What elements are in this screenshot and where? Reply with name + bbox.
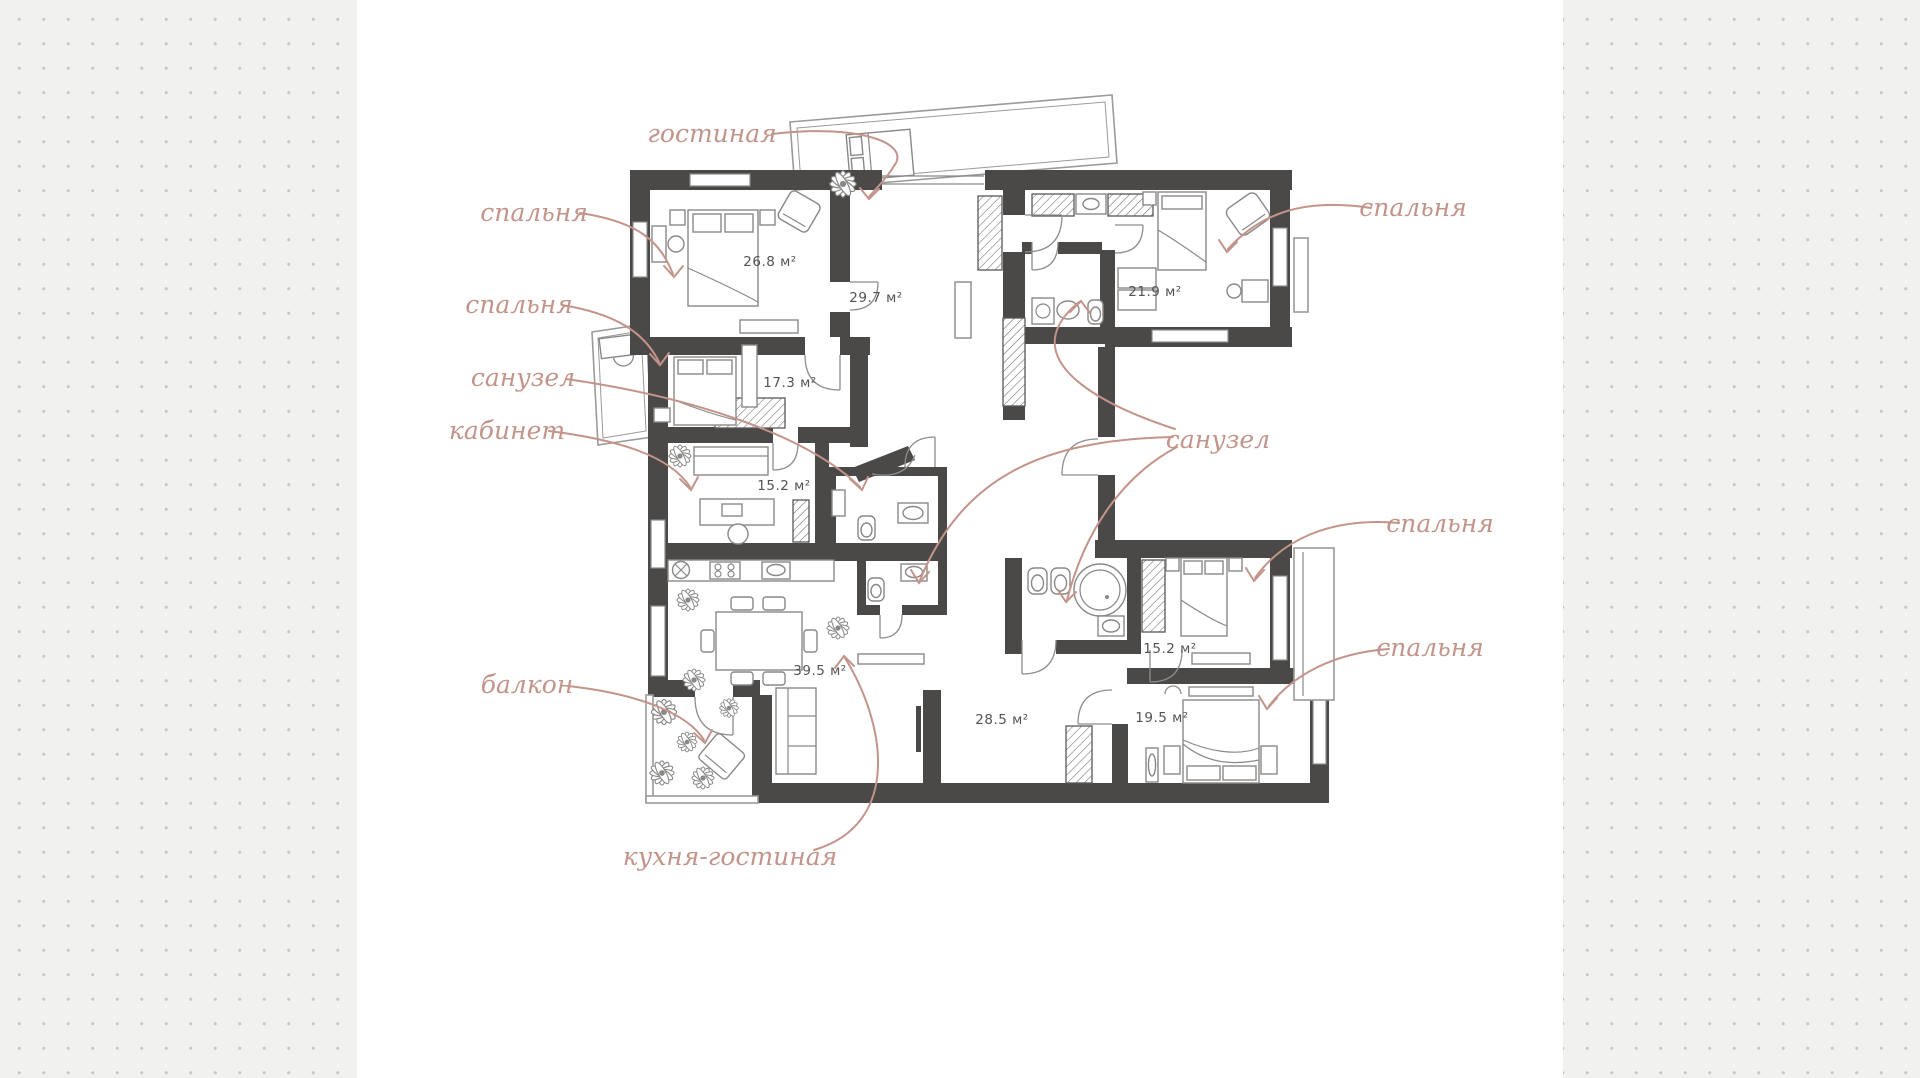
area-office: 15.2 м² (757, 478, 810, 494)
area-bedroom-top-right: 21.9 м² (1128, 284, 1181, 300)
label-balcony: балкон (481, 670, 574, 699)
callout-labels: гостиная спальня спальня санузел кабинет… (449, 119, 1494, 871)
loggia-top-right (1294, 238, 1308, 312)
area-bedroom-top-left: 26.8 м² (743, 254, 796, 270)
area-bedroom-left: 17.3 м² (763, 375, 816, 391)
label-bedroom-mid-right: спальня (1386, 509, 1494, 538)
furniture-office (694, 447, 774, 544)
area-bedroom-bottom-right: 19.5 м² (1135, 710, 1188, 726)
label-bedroom-bottom-right: спальня (1376, 633, 1484, 662)
area-living: 29.7 м² (849, 290, 902, 306)
label-bedroom-top-left: спальня (480, 198, 588, 227)
label-office: кабинет (449, 416, 565, 445)
label-bathroom-left: санузел (471, 363, 575, 392)
furniture-wc-left (832, 490, 928, 540)
label-bathrooms-right: санузел (1166, 425, 1270, 454)
area-kitchen-living: 39.5 м² (793, 663, 846, 679)
floor-plan-svg: 26.8 м² 29.7 м² 21.9 м² 17.3 м² 15.2 м² … (0, 0, 1920, 1078)
page: { "canvas": {"width": 1920, "height": 10… (0, 0, 1920, 1078)
furniture-bedroom-bottom-right (1146, 686, 1277, 783)
label-bedroom-left: спальня (465, 290, 573, 319)
area-hall: 28.5 м² (975, 712, 1028, 728)
furniture-bathroom-mid-right (1028, 564, 1126, 636)
label-living: гостиная (647, 119, 776, 148)
label-bedroom-top-right: спальня (1359, 193, 1467, 222)
label-kitchen-living: кухня-гостиная (623, 842, 837, 871)
area-bedroom-mid-right: 15.2 м² (1143, 641, 1196, 657)
